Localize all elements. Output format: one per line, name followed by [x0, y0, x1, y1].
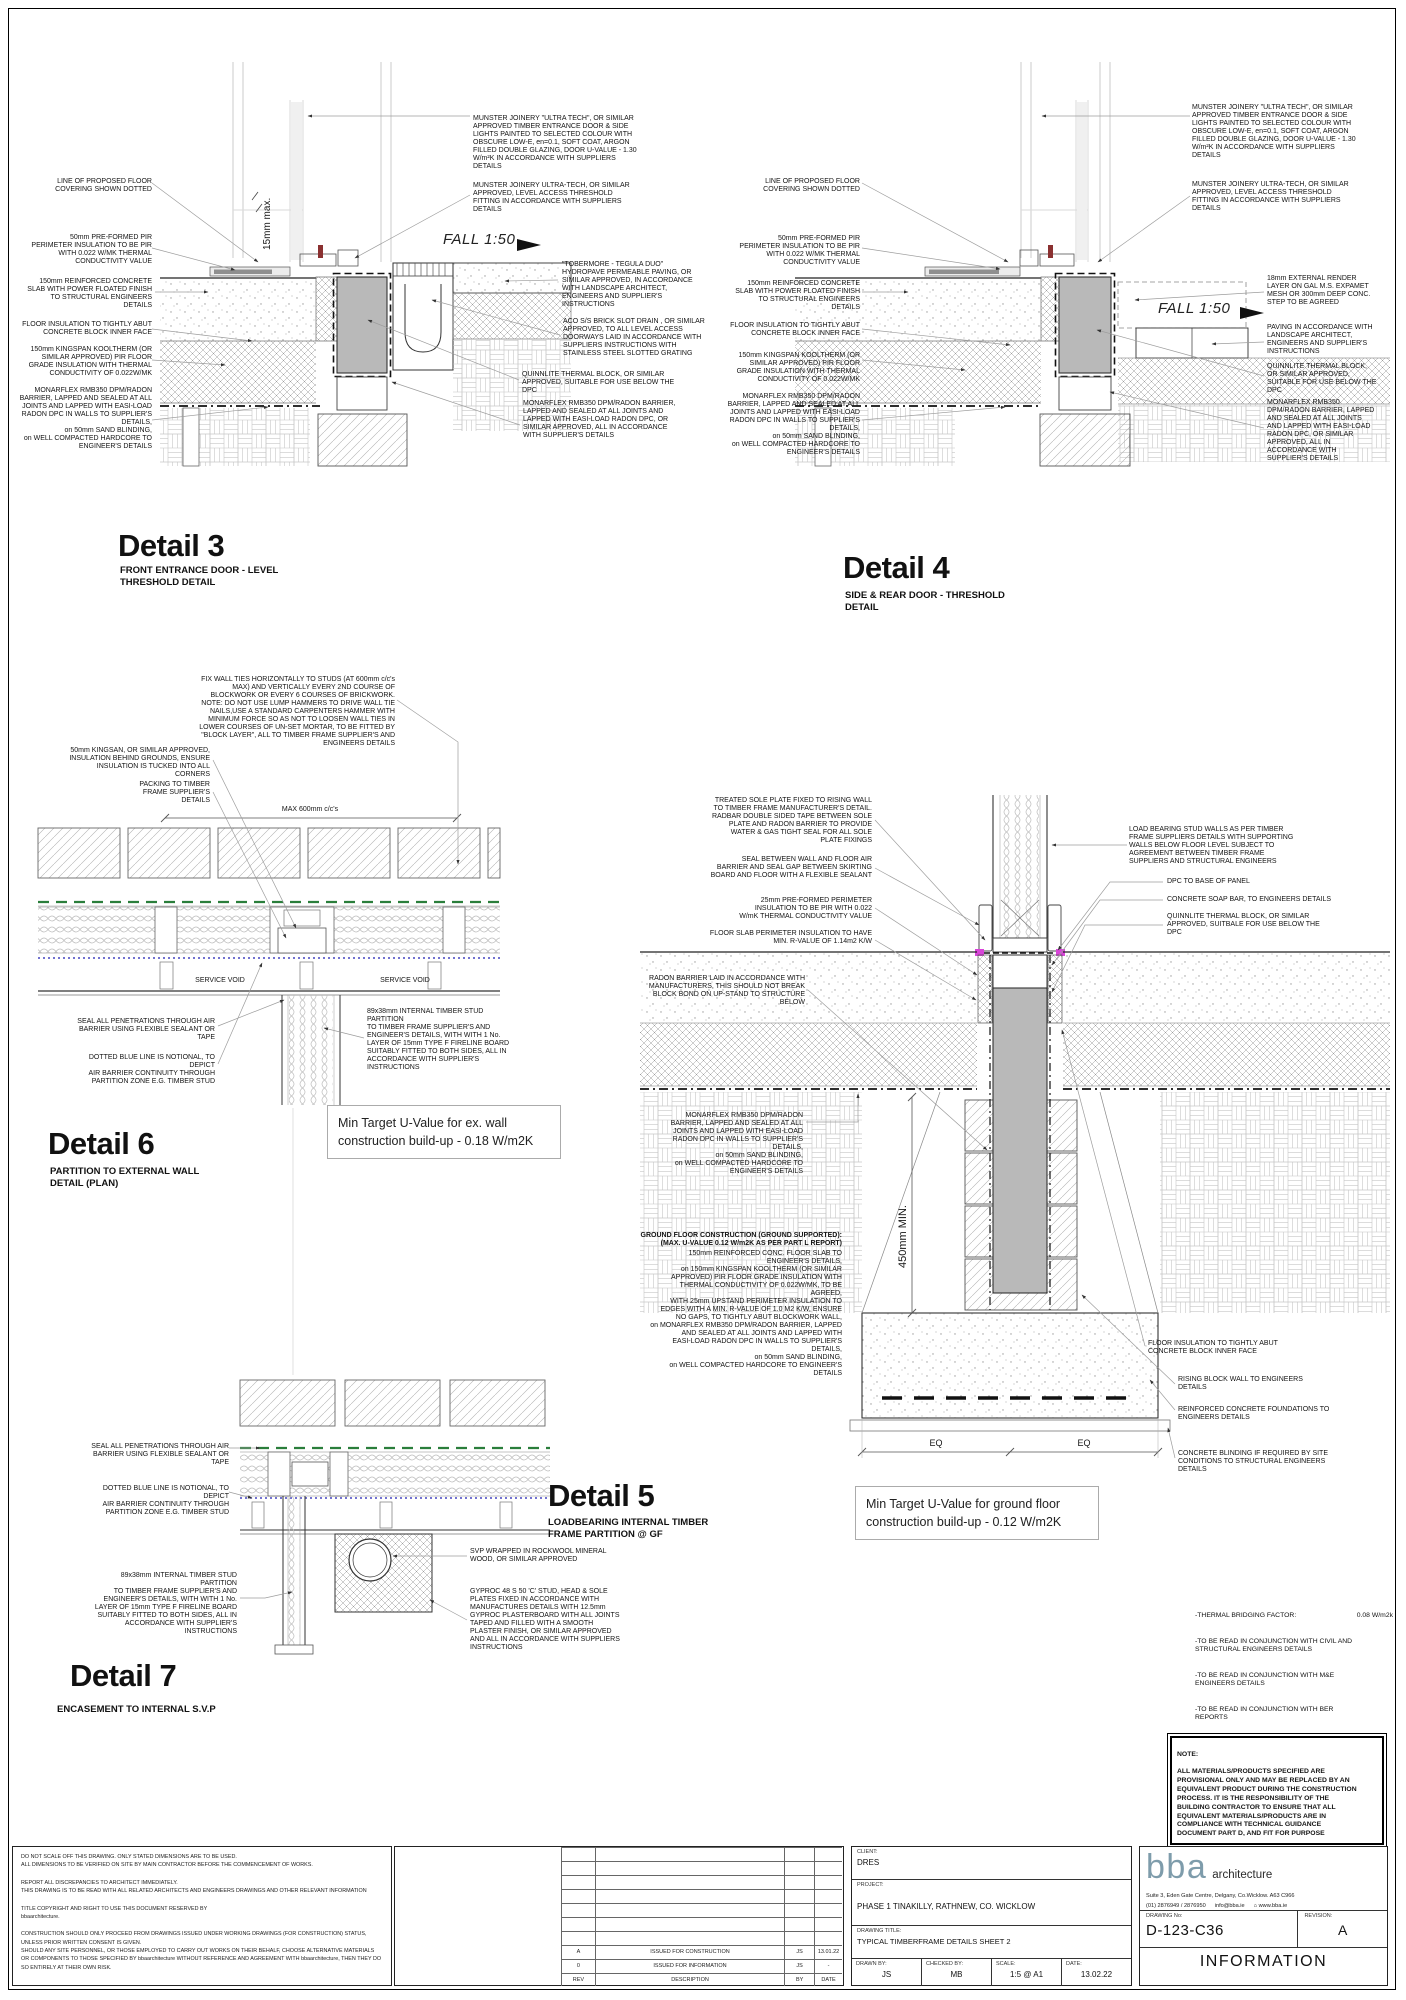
drawing-title: TYPICAL TIMBERFRAME DETAILS SHEET 2 — [857, 1937, 1126, 1946]
revision-table: A ISSUED FOR CONSTRUCTION JS 13.01.22 0 … — [394, 1846, 844, 1986]
d5-note-dpc: DPC TO BASE OF PANEL — [1167, 878, 1367, 886]
d4-note-munster-threshold: MUNSTER JOINERY ULTRA-TECH, OR SIMILAR A… — [1192, 181, 1364, 213]
d5-note-sole-plate: TREATED SOLE PLATE FIXED TO RISING WALL … — [712, 797, 872, 845]
d6-dim-600: MAX 600mm c/c's — [250, 806, 370, 814]
d3-note-quinnlite: QUINNLITE THERMAL BLOCK, OR SIMILAR APPR… — [522, 371, 677, 395]
drawn-checked-row: DRAWN BY:JS CHECKED BY:MB SCALE:1:5 @ A1… — [852, 1958, 1131, 1986]
phone-number: (01) 2876949 / 2876950 — [1146, 1903, 1206, 1909]
thermal-bridging-label: -THERMAL BRIDGING FACTOR: — [1195, 1612, 1296, 1620]
d6-note-wall-ties: FIX WALL TIES HORIZONTALLY TO STUDS (AT … — [160, 676, 395, 748]
note-box-title: NOTE: — [1177, 1751, 1198, 1758]
drawing-number: D-123-C36 — [1146, 1922, 1291, 1939]
d5-note-ground-floor-body: 150mm REINFORCED CONC. FLOOR SLAB TO ENG… — [607, 1250, 842, 1378]
d4-note-render: 18mm EXTERNAL RENDER LAYER ON GAL M.S. E… — [1267, 275, 1392, 307]
d5-note-rising-block: RISING BLOCK WALL TO ENGINEERS DETAILS — [1178, 1376, 1328, 1392]
d5-note-soap-bar: CONCRETE SOAP BAR, TO ENGINEERS DETAILS — [1167, 896, 1367, 904]
note-me: -TO BE READ IN CONJUNCTION WITH M&E ENGI… — [1195, 1672, 1393, 1689]
d3-note-munster-threshold: MUNSTER JOINERY ULTRA-TECH, OR SIMILAR A… — [473, 182, 645, 214]
d3-note-kingspan: 150mm KINGSPAN KOOLTHERM (OR SIMILAR APP… — [18, 346, 152, 378]
d7-note-seal: SEAL ALL PENETRATIONS THROUGH AIR BARRIE… — [82, 1443, 229, 1467]
detail5-title: Detail 5 — [548, 1478, 654, 1514]
d5-note-floor-insulation: FLOOR INSULATION TO TIGHTLY ABUT CONCRET… — [1148, 1340, 1318, 1356]
project-row: PROJECT: PHASE 1 TINAKILLY, RATHNEW, CO.… — [852, 1880, 1131, 1926]
checked-by: MB — [926, 1970, 987, 1979]
architect-box: bbaarchitecture Suite 3, Eden Gate Centr… — [1139, 1846, 1388, 1986]
d5-note-radon-barrier: RADON BARRIER LAID IN ACCORDANCE WITH MA… — [645, 975, 805, 1007]
d5-note-25mm-insulation: 25mm PRE-FORMED PERIMETER INSULATION TO … — [722, 897, 872, 921]
d3-note-floor-insulation: FLOOR INSULATION TO TIGHTLY ABUT CONCRET… — [10, 321, 152, 337]
d5-note-ground-floor-header: GROUND FLOOR CONSTRUCTION (GROUND SUPPOR… — [607, 1232, 842, 1248]
email-address: info@bba.ie — [1215, 1903, 1245, 1909]
d7-note-svp: SVP WRAPPED IN ROCKWOOL MINERAL WOOD, OR… — [470, 1548, 620, 1564]
project-name: PHASE 1 TINAKILLY, RATHNEW, CO. WICKLOW — [857, 1902, 1126, 1911]
drawing-number-row: DRAWING No: D-123-C36 REVISION: A — [1140, 1910, 1387, 1947]
d5-dim-eq-2: EQ — [1064, 1438, 1104, 1448]
detail6-title: Detail 6 — [48, 1126, 154, 1162]
website: ⌂ www.bba.ie — [1254, 1903, 1288, 1909]
d5-dim-450: 450mm MIN. — [897, 1205, 909, 1268]
bba-logo: bba — [1146, 1848, 1207, 1886]
d3-note-munster-door: MUNSTER JOINERY "ULTRA TECH", OR SIMILAR… — [473, 115, 645, 171]
detail7-subtitle: ENCASEMENT TO INTERNAL S.V.P — [57, 1704, 216, 1716]
d6-service-void-1: SERVICE VOID — [180, 977, 260, 985]
revision-letter: A — [1304, 1922, 1381, 1938]
d6-uvalue-box: Min Target U-Value for ex. wall construc… — [327, 1105, 561, 1159]
note-civil-structural: -TO BE READ IN CONJUNCTION WITH CIVIL AN… — [1195, 1638, 1393, 1655]
d4-note-paving: PAVING IN ACCORDANCE WITH LANDSCAPE ARCH… — [1267, 324, 1392, 356]
d3-note-monarflex-right: MONARFLEX RMB350 DPM/RADON BARRIER, LAPP… — [523, 400, 683, 440]
scale-value: 1:5 @ A1 — [996, 1970, 1057, 1979]
d4-note-monarflex: MONARFLEX RMB350 DPM/RADON BARRIER, LAPP… — [710, 393, 860, 457]
d5-note-rvalue: FLOOR SLAB PERIMETER INSULATION TO HAVE … — [697, 930, 872, 946]
d4-note-quinnlite: QUINNLITE THERMAL BLOCK, OR SIMILAR APPR… — [1267, 363, 1392, 395]
d4-fall-label: FALL 1:50 — [1158, 300, 1230, 317]
d7-note-blue-line: DOTTED BLUE LINE IS NOTIONAL, TO DEPICT … — [82, 1485, 229, 1517]
d3-fall-label: FALL 1:50 — [443, 231, 515, 248]
d3-note-monarflex: MONARFLEX RMB350 DPM/RADON BARRIER, LAPP… — [15, 387, 152, 451]
detail5-subtitle: LOADBEARING INTERNAL TIMBER FRAME PARTIT… — [548, 1517, 708, 1542]
d6-note-kingsan: 50mm KINGSAN, OR SIMILAR APPROVED, INSUL… — [62, 747, 210, 779]
disclaimer-1: DO NOT SCALE OFF THIS DRAWING. ONLY STAT… — [21, 1853, 383, 1870]
d4-note-kingspan: 150mm KINGSPAN KOOLTHERM (OR SIMILAR APP… — [718, 352, 860, 384]
materials-note-box: NOTE: ALL MATERIALS/PRODUCTS SPECIFIED A… — [1167, 1733, 1387, 1848]
d7-note-stud-partition: 89x38mm INTERNAL TIMBER STUD PARTITION T… — [87, 1572, 237, 1636]
project-info-box: CLIENT: DRES PROJECT: PHASE 1 TINAKILLY,… — [851, 1846, 1132, 1986]
detail6-drawing — [38, 814, 500, 1375]
drawing-title-row: DRAWING TITLE: TYPICAL TIMBERFRAME DETAI… — [852, 1926, 1131, 1958]
d3-note-concrete-slab: 150mm REINFORCED CONCRETE SLAB WITH POWE… — [22, 278, 152, 310]
architect-contact: (01) 2876949 / 2876950 info@bba.ie ⌂ www… — [1140, 1902, 1387, 1910]
date-value: 13.02.22 — [1066, 1970, 1127, 1979]
d3-note-floor-covering: LINE OF PROPOSED FLOOR COVERING SHOWN DO… — [25, 178, 152, 194]
detail3-title: Detail 3 — [118, 528, 224, 564]
disclaimer-2: REPORT ALL DISCREPANCIES TO ARCHITECT IM… — [21, 1879, 383, 1896]
d5-note-quinnlite: QUINNLITE THERMAL BLOCK, OR SIMILAR APPR… — [1167, 913, 1332, 937]
d5-dim-eq-1: EQ — [916, 1438, 956, 1448]
note-ber: -TO BE READ IN CONJUNCTION WITH BER REPO… — [1195, 1706, 1393, 1723]
drawing-sheet: LINE OF PROPOSED FLOOR COVERING SHOWN DO… — [0, 0, 1406, 2000]
d4-note-monarflex-right: MONARFLEX RMB350 DPM/RADON BARRIER, LAPP… — [1267, 399, 1392, 463]
d5-note-load-bearing: LOAD BEARING STUD WALLS AS PER TIMBER FR… — [1129, 826, 1329, 866]
client-name: DRES — [857, 1858, 1126, 1867]
d6-note-stud-partition: 89x38mm INTERNAL TIMBER STUD PARTITION T… — [367, 1008, 519, 1072]
d4-note-concrete-slab: 150mm REINFORCED CONCRETE SLAB WITH POWE… — [718, 280, 860, 312]
architect-address: Suite 3, Eden Gate Centre, Delgany, Co.W… — [1140, 1892, 1387, 1900]
d3-note-aco-drain: ACO S/S BRICK SLOT DRAIN , OR SIMILAR AP… — [563, 318, 713, 358]
detail3-subtitle: FRONT ENTRANCE DOOR - LEVEL THRESHOLD DE… — [120, 565, 278, 590]
drawn-by: JS — [856, 1970, 917, 1979]
d6-note-blue-line: DOTTED BLUE LINE IS NOTIONAL, TO DEPICT … — [65, 1054, 215, 1086]
d4-note-perimeter-insulation: 50mm PRE-FORMED PIR PERIMETER INSULATION… — [718, 235, 860, 267]
d4-note-munster-door: MUNSTER JOINERY "ULTRA TECH", OR SIMILAR… — [1192, 104, 1364, 160]
note-thermal-bridging: -THERMAL BRIDGING FACTOR: 0.08 W/m2k — [1195, 1612, 1393, 1620]
detail4-title: Detail 4 — [843, 550, 949, 586]
status-badge: INFORMATION — [1140, 1947, 1387, 1975]
revision-row-a: A ISSUED FOR CONSTRUCTION JS 13.01.22 — [561, 1945, 842, 1959]
revision-row-0: 0 ISSUED FOR INFORMATION JS - — [561, 1959, 842, 1973]
disclaimer-box: DO NOT SCALE OFF THIS DRAWING. ONLY STAT… — [12, 1846, 392, 1986]
thermal-bridging-value: 0.08 W/m2k — [1357, 1612, 1393, 1620]
d5-uvalue-box: Min Target U-Value for ground floor cons… — [855, 1486, 1099, 1540]
disclaimer-4: CONSTRUCTION SHOULD ONLY PROCEED FROM DR… — [21, 1930, 383, 1972]
logo-row: bbaarchitecture — [1140, 1847, 1387, 1892]
d5-note-foundations: REINFORCED CONCRETE FOUNDATIONS TO ENGIN… — [1178, 1406, 1358, 1422]
d4-note-floor-covering: LINE OF PROPOSED FLOOR COVERING SHOWN DO… — [730, 178, 860, 194]
client-row: CLIENT: DRES — [852, 1847, 1131, 1880]
d7-note-gyproc: GYPROC 48 S 50 'C' STUD, HEAD & SOLE PLA… — [470, 1588, 620, 1652]
d5-note-seal-wall-floor: SEAL BETWEEN WALL AND FLOOR AIR BARRIER … — [697, 856, 872, 880]
d6-note-packing: PACKING TO TIMBER FRAME SUPPLIER'S DETAI… — [112, 781, 210, 805]
d6-service-void-2: SERVICE VOID — [365, 977, 445, 985]
d3-note-perimeter-insulation: 50mm PRE-FORMED PIR PERIMETER INSULATION… — [22, 234, 152, 266]
d3-dim-15mm: 15mm max. — [262, 198, 273, 250]
d5-note-blinding: CONCRETE BLINDING IF REQUIRED BY SITE CO… — [1178, 1450, 1353, 1474]
revision-header-row: REV DESCRIPTION BY DATE — [561, 1973, 842, 1986]
disclaimer-3: TITLE COPYRIGHT AND RIGHT TO USE THIS DO… — [21, 1905, 383, 1922]
detail4-subtitle: SIDE & REAR DOOR - THRESHOLD DETAIL — [845, 590, 1005, 615]
detail6-subtitle: PARTITION TO EXTERNAL WALL DETAIL (PLAN) — [50, 1166, 199, 1191]
d3-note-tobermore: "TOBERMORE - TEGULA DUO" HYDROPAVE PERME… — [562, 261, 702, 309]
detail7-title: Detail 7 — [70, 1658, 176, 1694]
d4-note-floor-insulation: FLOOR INSULATION TO TIGHTLY ABUT CONCRET… — [705, 322, 860, 338]
d5-note-monarflex: MONARFLEX RMB350 DPM/RADON BARRIER, LAPP… — [653, 1112, 803, 1176]
note-box-body: ALL MATERIALS/PRODUCTS SPECIFIED ARE PRO… — [1177, 1768, 1357, 1837]
bba-logo-architecture: architecture — [1212, 1869, 1272, 1881]
d6-note-seal: SEAL ALL PENETRATIONS THROUGH AIR BARRIE… — [65, 1018, 215, 1042]
